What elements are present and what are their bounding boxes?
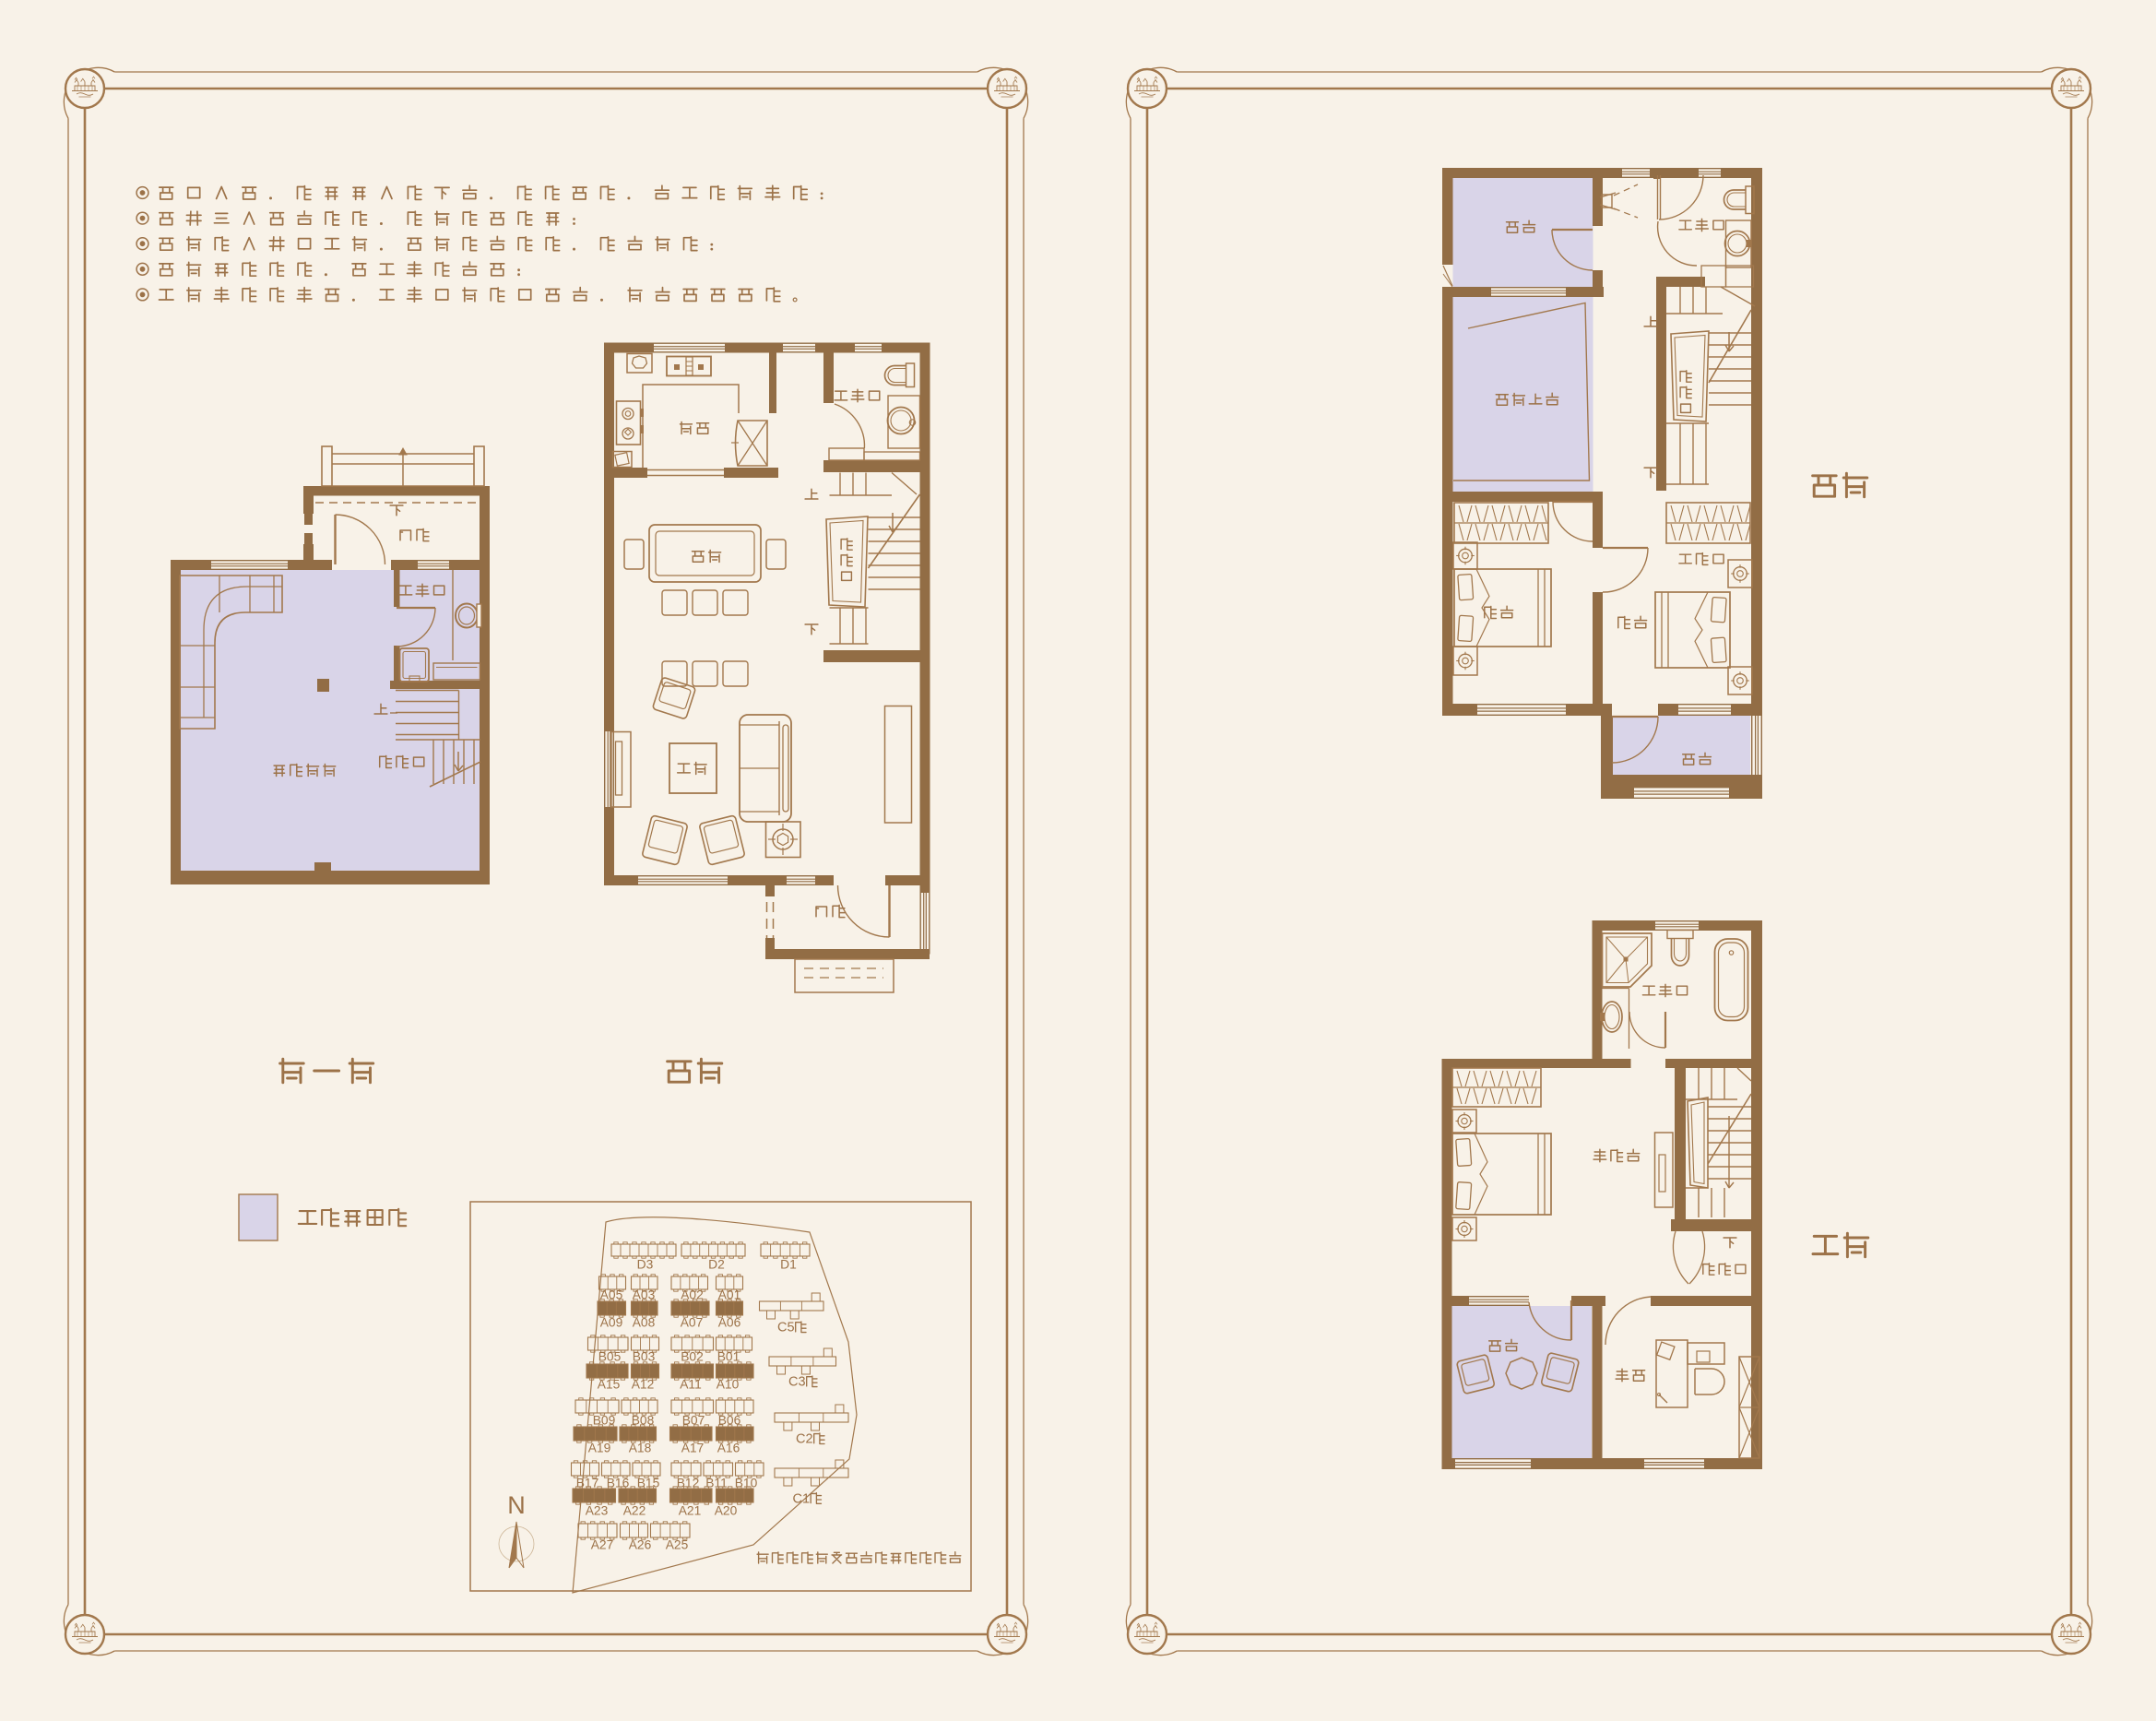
svg-text:A18: A18: [629, 1442, 652, 1455]
svg-text:A17: A17: [681, 1442, 705, 1455]
svg-text:C2: C2: [796, 1432, 813, 1447]
svg-text:A01: A01: [718, 1288, 741, 1302]
svg-text:B10: B10: [735, 1477, 758, 1490]
svg-text:N: N: [507, 1491, 526, 1519]
svg-text:A09: A09: [600, 1316, 623, 1330]
svg-text:A16: A16: [717, 1442, 740, 1455]
svg-text:B08: B08: [632, 1414, 655, 1428]
svg-text:C5: C5: [777, 1321, 795, 1335]
svg-text:A22: A22: [623, 1504, 646, 1518]
svg-text:B16: B16: [607, 1477, 630, 1490]
svg-text:A06: A06: [718, 1316, 741, 1330]
svg-text:D1: D1: [780, 1258, 797, 1272]
svg-text:A10: A10: [717, 1378, 740, 1392]
svg-text:A27: A27: [591, 1538, 614, 1552]
svg-text:B07: B07: [682, 1414, 705, 1428]
svg-text:B09: B09: [593, 1414, 616, 1428]
svg-text:C1: C1: [793, 1491, 811, 1506]
svg-text:A19: A19: [588, 1442, 611, 1455]
svg-text:D3: D3: [637, 1258, 654, 1272]
svg-text:A05: A05: [600, 1288, 623, 1302]
svg-text:A11: A11: [680, 1378, 702, 1392]
svg-text:A20: A20: [715, 1504, 738, 1518]
svg-text:A08: A08: [633, 1316, 656, 1330]
svg-text:A25: A25: [666, 1538, 689, 1552]
svg-text:B02: B02: [681, 1350, 704, 1364]
svg-text:C3: C3: [788, 1375, 806, 1390]
svg-text:A12: A12: [632, 1378, 655, 1392]
svg-text:A03: A03: [633, 1288, 656, 1302]
svg-text:B17: B17: [576, 1477, 599, 1490]
svg-text:A02: A02: [681, 1288, 704, 1302]
svg-text:A07: A07: [681, 1316, 704, 1330]
svg-text:D2: D2: [708, 1258, 725, 1272]
svg-text:A23: A23: [586, 1504, 609, 1518]
svg-text:A15: A15: [598, 1378, 621, 1392]
svg-text:A26: A26: [629, 1538, 652, 1552]
svg-text:A21: A21: [679, 1504, 702, 1518]
